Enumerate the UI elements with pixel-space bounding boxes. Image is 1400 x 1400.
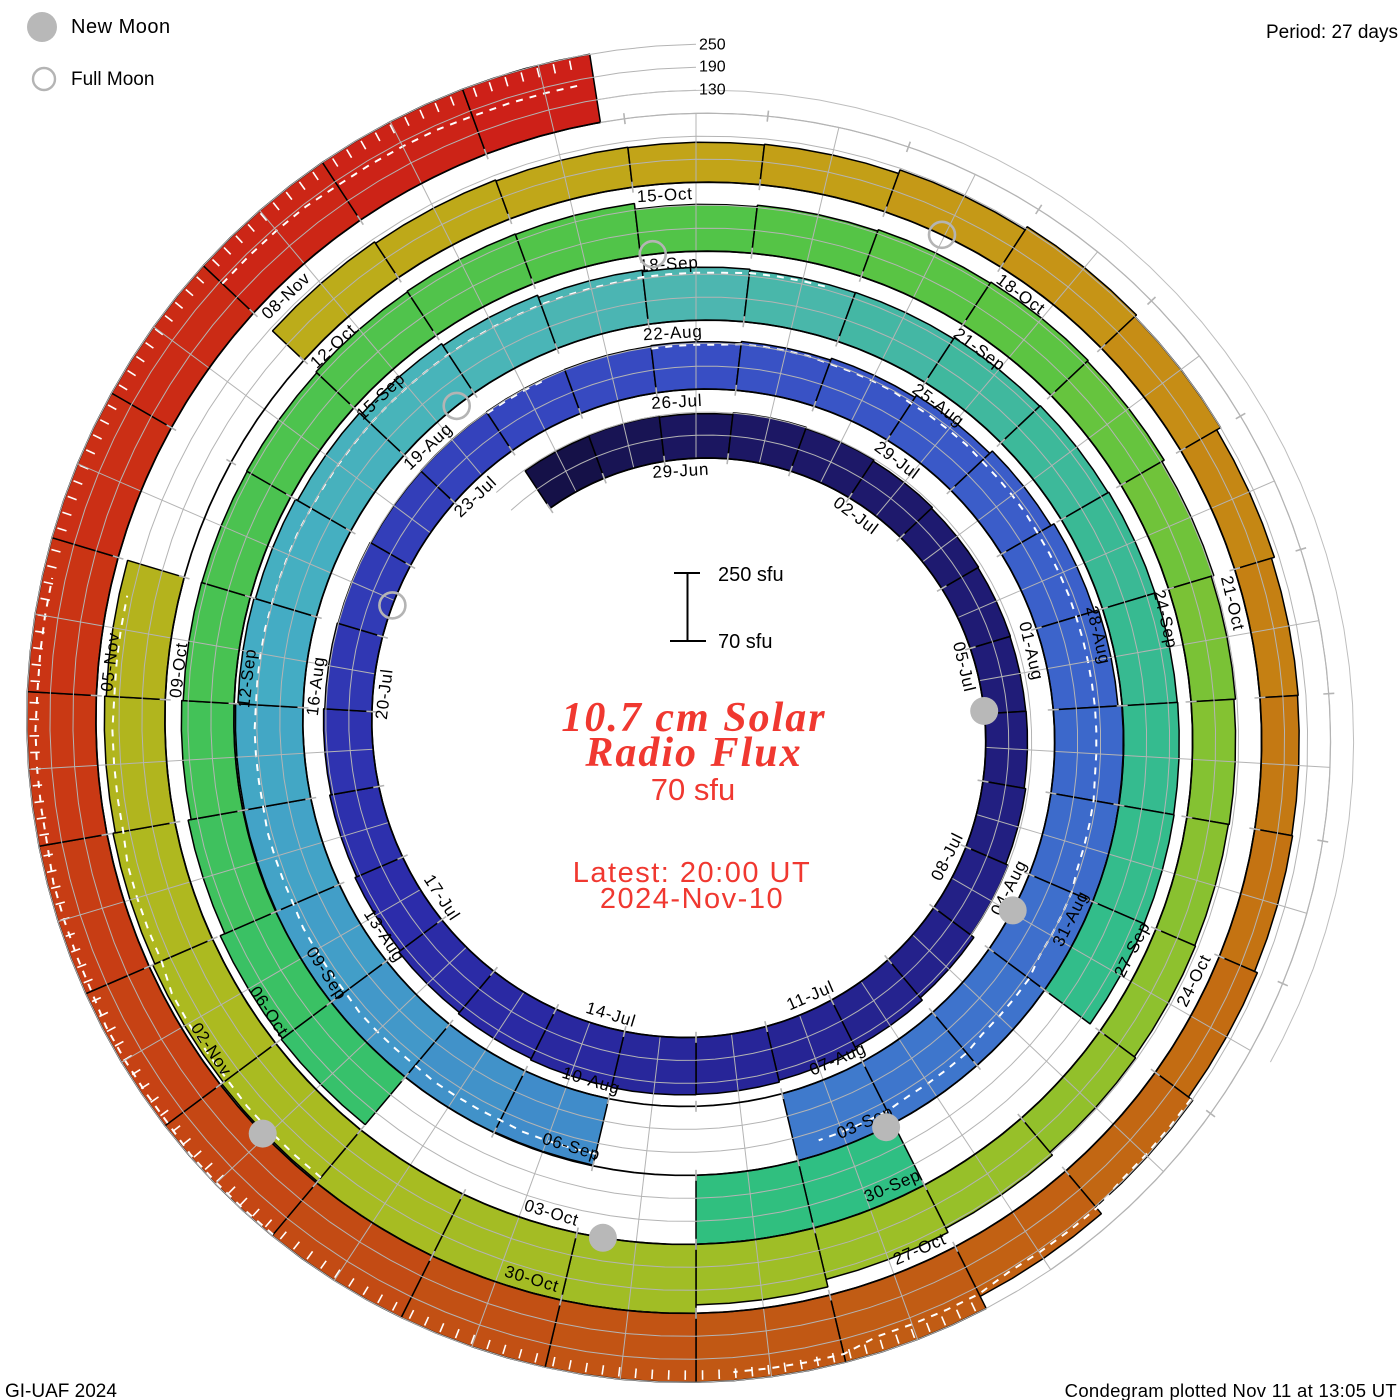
svg-text:190: 190 xyxy=(699,59,726,76)
svg-text:15-Oct: 15-Oct xyxy=(636,184,693,206)
svg-text:250: 250 xyxy=(699,37,726,54)
svg-text:Full Moon: Full Moon xyxy=(71,69,154,90)
svg-text:Radio Flux: Radio Flux xyxy=(584,730,802,776)
svg-text:GI-UAF 2024: GI-UAF 2024 xyxy=(5,1381,117,1400)
svg-text:26-Jul: 26-Jul xyxy=(651,391,703,413)
svg-text:70 sfu: 70 sfu xyxy=(651,772,735,807)
svg-text:130: 130 xyxy=(699,82,726,99)
svg-text:Period: 27 days: Period: 27 days xyxy=(1266,22,1398,43)
svg-text:22-Aug: 22-Aug xyxy=(643,322,704,344)
svg-text:29-Jun: 29-Jun xyxy=(652,460,710,482)
svg-text:250 sfu: 250 sfu xyxy=(718,564,784,586)
svg-text:70 sfu: 70 sfu xyxy=(718,631,772,653)
svg-text:18-Sep: 18-Sep xyxy=(639,253,700,275)
svg-text:Condegram plotted Nov 11 at 13: Condegram plotted Nov 11 at 13:05 UT xyxy=(1065,1380,1397,1400)
svg-text:2024-Nov-10: 2024-Nov-10 xyxy=(600,883,784,915)
svg-text:New Moon: New Moon xyxy=(71,16,171,38)
